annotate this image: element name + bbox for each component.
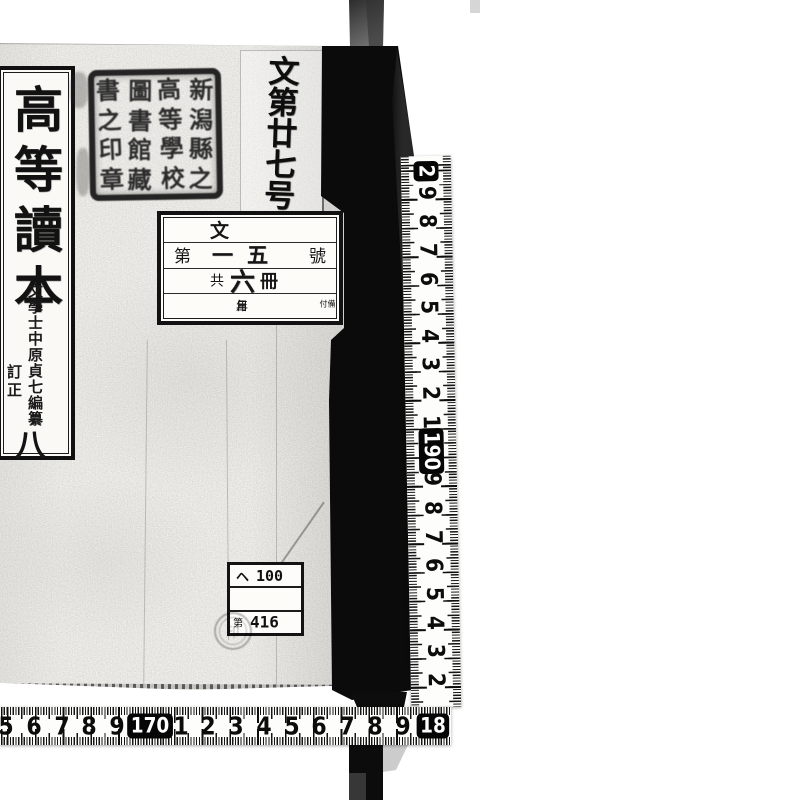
vertical-ruler: 298765432119098765432 [401, 156, 462, 708]
ruler-mark: 1 [418, 415, 444, 430]
ruler-mark: 4 [416, 329, 442, 344]
ruler-mark: 9 [413, 186, 439, 201]
scanned-book-photo: 高等讀本 文學士中原貞七編纂 訂正 八 新潟縣之高等學校圖書館藏書之印章 文第廿… [0, 0, 800, 800]
ruler-mark: 8 [367, 712, 382, 741]
ruler-mark: 7 [420, 530, 446, 545]
ruler-mark: 2 [417, 386, 443, 401]
ruler-mark: 8 [419, 501, 445, 516]
spine-gray-wedge [383, 745, 408, 772]
ruler-mark: 4 [256, 712, 271, 741]
ruler-mark: 1 [173, 712, 188, 741]
ruler-mark: 6 [311, 712, 326, 741]
book-spine [0, 0, 800, 800]
ruler-mark: 2 [413, 161, 438, 181]
ruler-mark: 2 [423, 673, 449, 688]
ruler-mark: 4 [422, 616, 448, 631]
ruler-mark: 8 [414, 214, 440, 229]
ruler-mark: 170 [127, 714, 173, 739]
ruler-mark: 7 [54, 712, 69, 741]
ruler-mark: 3 [417, 357, 443, 372]
ruler-mark: 190 [418, 428, 444, 474]
ruler-mark: 2 [200, 712, 215, 741]
ruler-mark: 5 [421, 587, 447, 602]
horizontal-ruler: 5678917012345678918 [0, 707, 451, 745]
spine-bottom-wedge [350, 691, 407, 707]
ruler-mark: 9 [395, 712, 410, 741]
ruler-mark: 8 [81, 712, 96, 741]
ruler-mark: 18 [417, 714, 450, 739]
ruler-mark: 6 [415, 272, 441, 287]
ruler-mark: 3 [422, 644, 448, 659]
ruler-mark: 6 [26, 712, 41, 741]
ruler-mark: 5 [0, 712, 14, 741]
ruler-mark: 5 [415, 300, 441, 315]
ruler-mark: 7 [339, 712, 354, 741]
ruler-mark: 5 [284, 712, 299, 741]
ruler-mark: 9 [419, 472, 445, 487]
ruler-mark: 7 [414, 243, 440, 258]
ruler-mark: 9 [109, 712, 124, 741]
ruler-mark: 6 [420, 558, 446, 573]
ruler-mark: 3 [228, 712, 243, 741]
